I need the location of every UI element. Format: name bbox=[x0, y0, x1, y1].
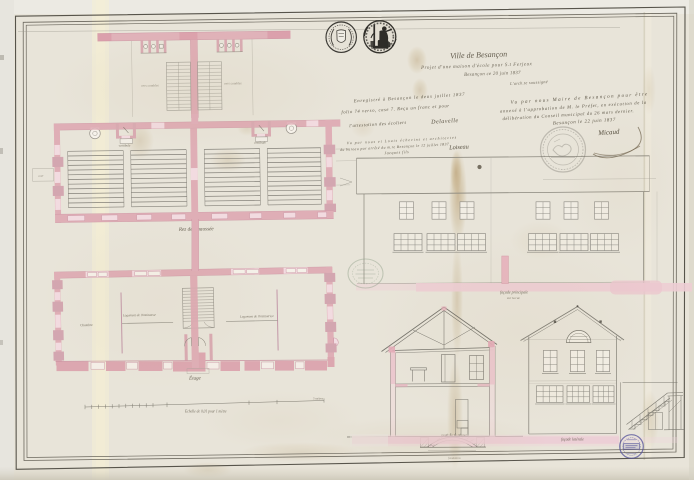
svg-text:cour: cour bbox=[38, 174, 44, 178]
svg-text:Loiseau: Loiseau bbox=[448, 143, 469, 151]
svg-text:façade latérale: façade latérale bbox=[561, 438, 584, 442]
svg-text:vestibule: vestibule bbox=[119, 143, 131, 147]
